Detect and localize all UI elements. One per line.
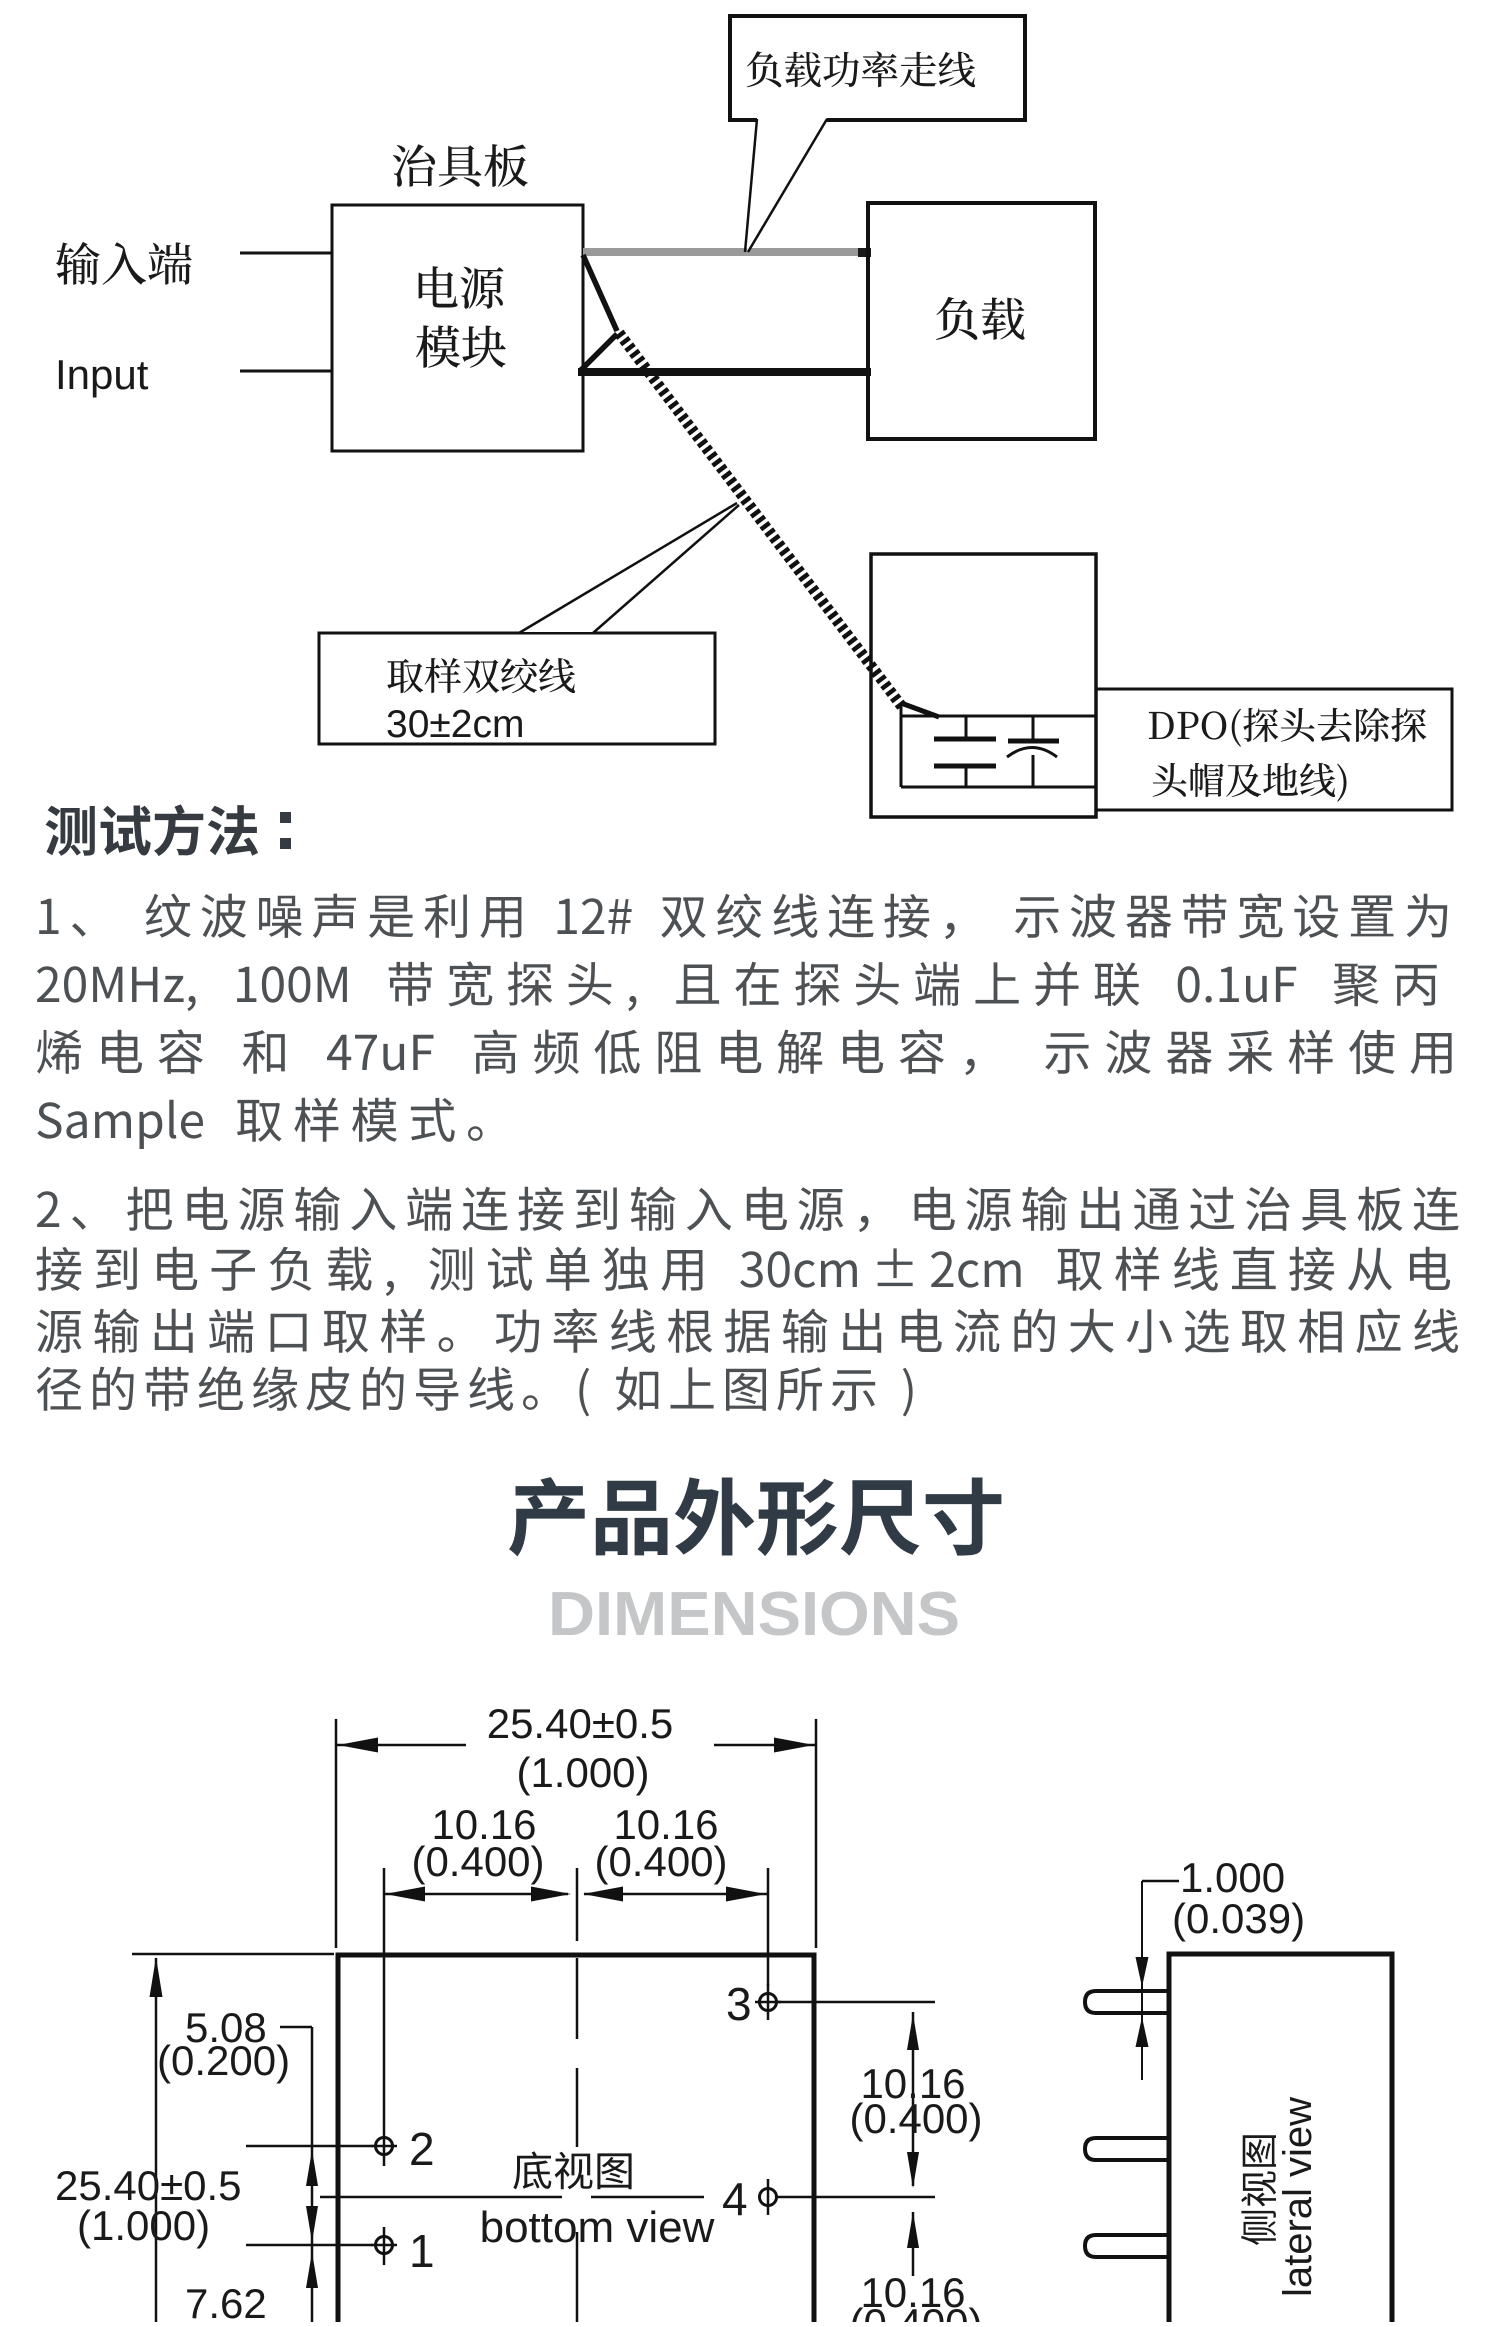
svg-text:(0.039): (0.039): [1172, 1895, 1305, 1942]
svg-text:bottom view: bottom view: [480, 2203, 715, 2252]
svg-text:(0.400): (0.400): [411, 1838, 544, 1885]
svg-text:Input: Input: [55, 351, 149, 398]
svg-text:(0.400): (0.400): [594, 1838, 727, 1885]
svg-text:1: 1: [409, 2225, 435, 2277]
svg-text:(1.000): (1.000): [516, 1749, 649, 1796]
svg-text:25.40±0.5: 25.40±0.5: [487, 1700, 674, 1747]
svg-text:2: 2: [409, 2123, 435, 2175]
svg-text:(0.200): (0.200): [157, 2037, 290, 2084]
svg-text:lateral view: lateral view: [1276, 2097, 1320, 2297]
svg-text:7.62: 7.62: [185, 2280, 267, 2322]
svg-text:3: 3: [726, 1978, 752, 2030]
svg-text:4: 4: [722, 2173, 748, 2225]
svg-text:(0.400): (0.400): [849, 2095, 982, 2142]
svg-text:1.000: 1.000: [1180, 1854, 1285, 1901]
svg-text:DIMENSIONS: DIMENSIONS: [548, 1580, 960, 1649]
svg-text:(0.400): (0.400): [849, 2300, 982, 2322]
svg-text:30±2cm: 30±2cm: [386, 703, 524, 746]
svg-text:(1.000): (1.000): [77, 2202, 210, 2249]
